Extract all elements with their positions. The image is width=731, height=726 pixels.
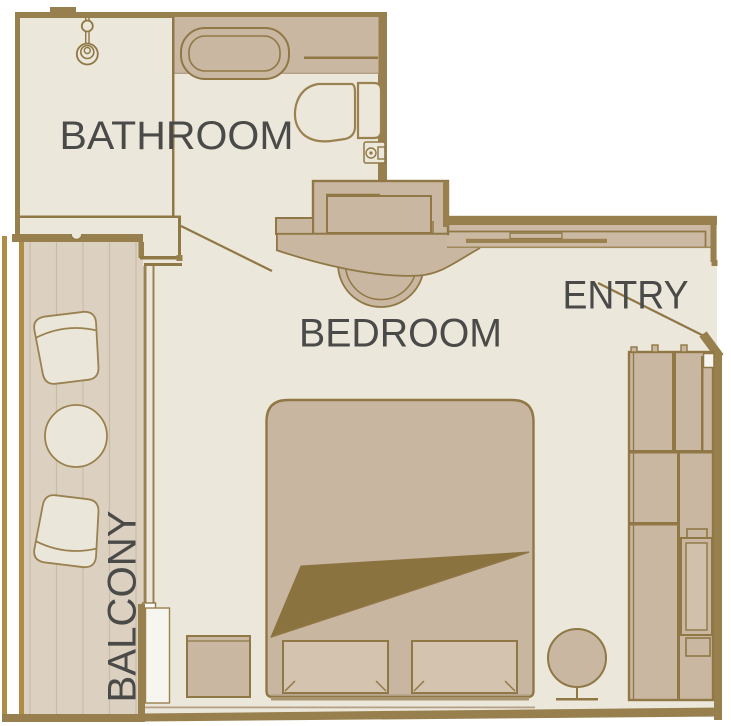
svg-text:BALCONY: BALCONY (101, 511, 145, 703)
svg-text:ENTRY: ENTRY (563, 274, 689, 318)
svg-text:BEDROOM: BEDROOM (299, 312, 502, 356)
svg-text:BATHROOM: BATHROOM (60, 114, 294, 158)
